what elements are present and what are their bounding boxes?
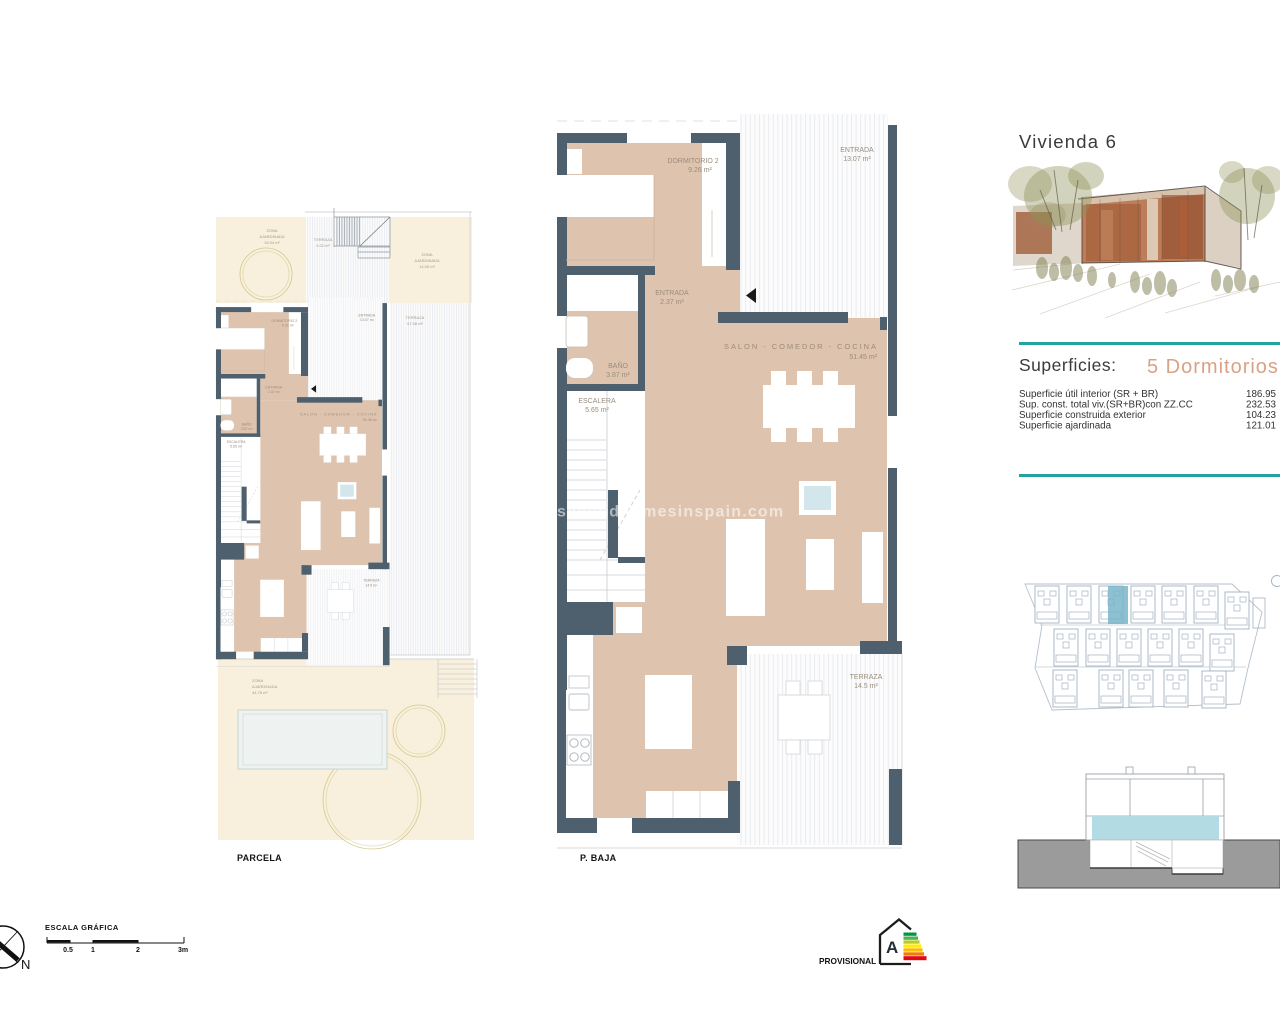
svg-text:PROVISIONAL: PROVISIONAL [819, 956, 876, 966]
svg-text:PARCELA: PARCELA [237, 853, 282, 863]
svg-text:5 Dormitorios: 5 Dormitorios [1147, 356, 1279, 378]
svg-text:AJARDINADA: AJARDINADA [252, 684, 278, 689]
svg-text:1: 1 [91, 947, 95, 954]
svg-text:232.53: 232.53 [1246, 400, 1277, 411]
svg-text:14.05 m²: 14.05 m² [419, 264, 435, 269]
svg-text:Superficie útil interior (SR +: Superficie útil interior (SR + BR) [1019, 389, 1158, 400]
svg-text:AJARDINADA: AJARDINADA [259, 234, 285, 239]
svg-text:186.95: 186.95 [1246, 389, 1277, 400]
svg-text:57.08 m²: 57.08 m² [407, 321, 423, 326]
svg-text:ESCALA GRÁFICA: ESCALA GRÁFICA [45, 923, 119, 932]
svg-text:P. BAJA: P. BAJA [580, 853, 617, 863]
svg-text:15.04 m²: 15.04 m² [264, 240, 280, 245]
svg-text:A: A [886, 938, 898, 957]
svg-text:104.23: 104.23 [1246, 410, 1277, 421]
svg-text:0.5: 0.5 [63, 947, 73, 954]
svg-text:9.22 m²: 9.22 m² [316, 243, 330, 248]
svg-text:ZONA: ZONA [252, 678, 263, 683]
svg-text:TERRAZA: TERRAZA [406, 315, 425, 320]
svg-text:ZONA: ZONA [421, 252, 432, 257]
svg-text:Sup. const. total viv.(SR+BR)c: Sup. const. total viv.(SR+BR)con ZZ.CC [1019, 400, 1193, 411]
svg-text:Superficie construida exterior: Superficie construida exterior [1019, 410, 1147, 421]
svg-text:AJARDINADA: AJARDINADA [414, 258, 440, 263]
svg-text:N: N [21, 957, 30, 972]
svg-text:Superficies:: Superficies: [1019, 355, 1116, 375]
svg-text:ZONA: ZONA [266, 228, 277, 233]
svg-text:TERRAZA: TERRAZA [314, 237, 333, 242]
svg-text:Vivienda 6: Vivienda 6 [1019, 131, 1117, 152]
svg-text:2: 2 [136, 947, 140, 954]
svg-text:121.01: 121.01 [1246, 421, 1276, 432]
svg-text:44.76 m²: 44.76 m² [252, 690, 268, 695]
svg-text:3m: 3m [178, 947, 188, 954]
svg-text:Superficie ajardinada: Superficie ajardinada [1019, 421, 1112, 432]
svg-text:secondhomesinspain.com: secondhomesinspain.com [557, 504, 784, 521]
